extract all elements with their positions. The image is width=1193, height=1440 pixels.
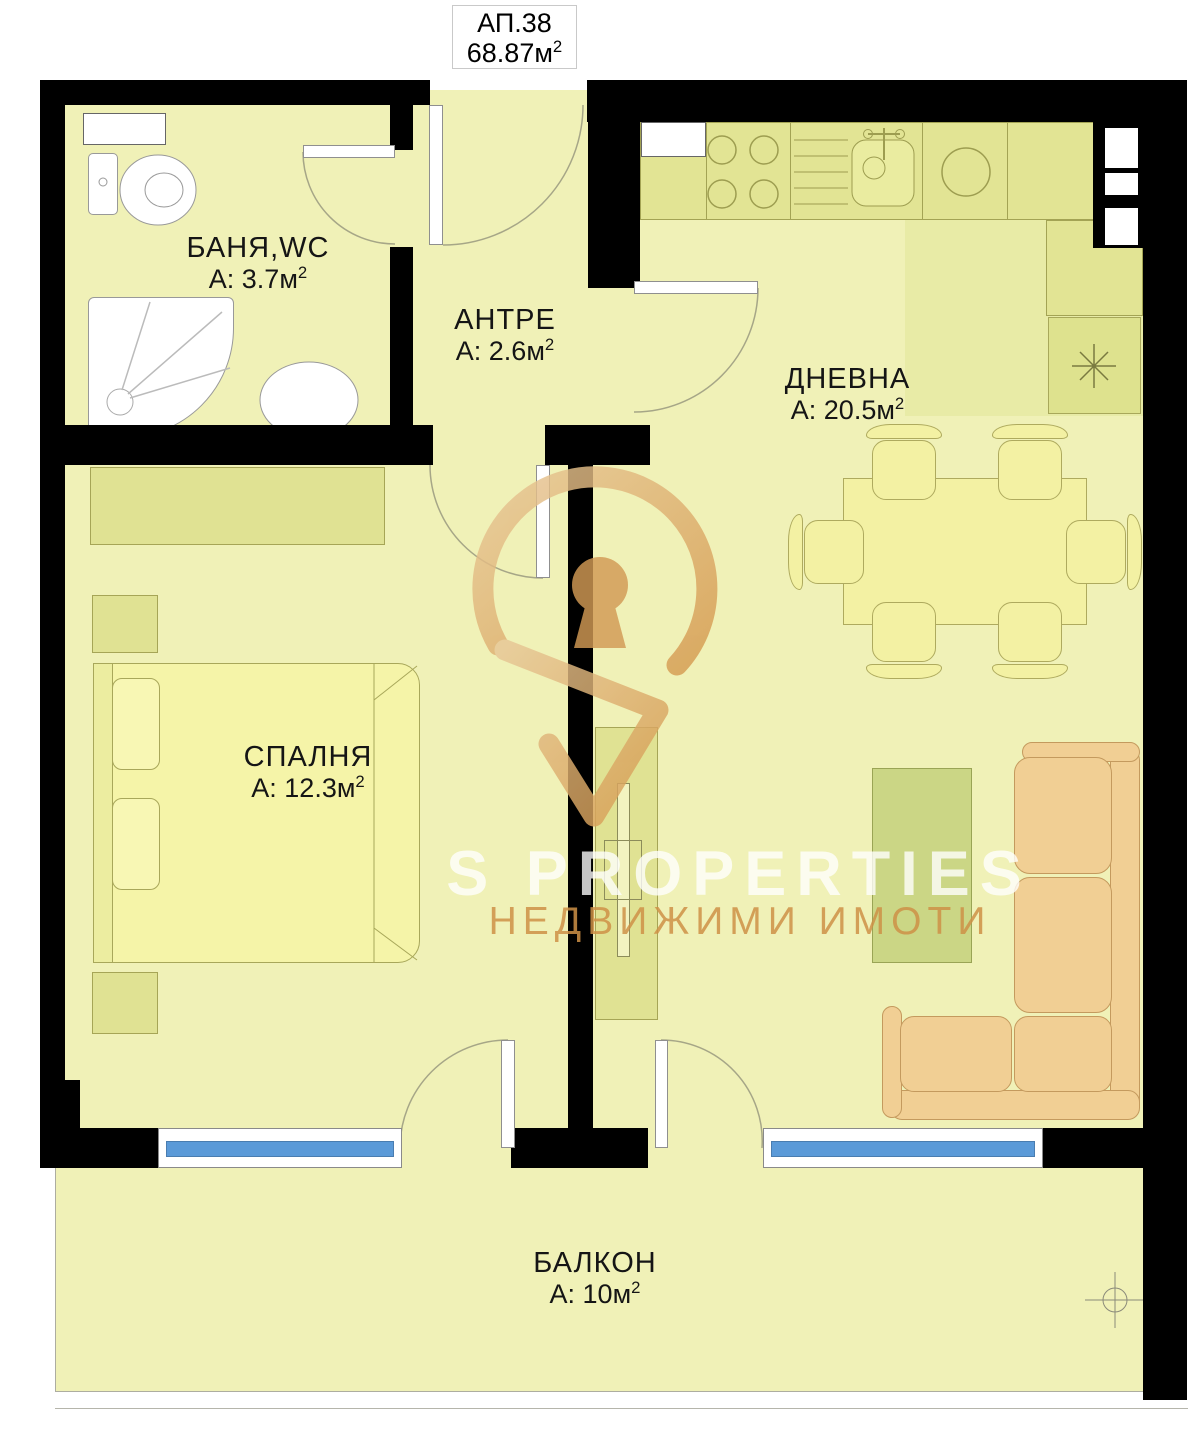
wall	[1143, 80, 1187, 1400]
wall	[40, 1128, 160, 1168]
sofa-backrest	[890, 1090, 1140, 1120]
sofa-cushion	[1014, 1016, 1112, 1092]
shaft-opening	[1105, 208, 1138, 245]
wall	[40, 80, 65, 1130]
total-area: 68.87м2	[453, 39, 576, 68]
room-label-bedroom: СПАЛНЯ А: 12.3м2	[208, 742, 408, 804]
chair	[872, 440, 936, 500]
sofa-armrest	[882, 1006, 902, 1118]
room-label-hallway: АНТРЕ А: 2.6м2	[405, 305, 605, 367]
counter-divider	[1007, 122, 1008, 220]
watermark-tagline: НЕДВИЖИМИ ИМОТИ	[400, 900, 1080, 944]
room-label-living: ДНЕВНА А: 20.5м2	[745, 364, 950, 426]
window-glass	[771, 1141, 1035, 1157]
chair	[998, 602, 1062, 662]
title-box: АП.38 68.87м2	[452, 5, 577, 69]
chair-back	[788, 514, 803, 590]
pillow	[112, 798, 160, 890]
wall	[390, 100, 413, 150]
wall	[588, 80, 640, 288]
kitchen-counter	[640, 122, 1100, 220]
room-label-bathroom: БАНЯ,WC А: 3.7м2	[158, 233, 358, 295]
chair-back	[992, 424, 1068, 439]
room-name: БАЛКОН	[495, 1248, 695, 1279]
room-area: А: 20.5м2	[745, 395, 950, 426]
door-leaf	[303, 145, 395, 158]
room-name: АНТРЕ	[405, 305, 605, 336]
door-leaf	[634, 281, 758, 294]
floor-plan: БАНЯ,WC А: 3.7м2 АНТРЕ А: 2.6м2 ДНЕВНА А…	[0, 0, 1193, 1440]
wall	[40, 425, 433, 465]
chair-back	[866, 424, 942, 439]
chair	[804, 520, 864, 584]
door-leaf	[501, 1040, 515, 1148]
room-name: БАНЯ,WC	[158, 233, 358, 264]
nightstand	[92, 972, 158, 1034]
chair-back	[992, 664, 1068, 679]
room-name: ДНЕВНА	[745, 364, 950, 395]
chair	[998, 440, 1062, 500]
washing-machine-icon	[641, 122, 706, 157]
wall	[511, 1128, 648, 1168]
bed-headboard	[93, 663, 113, 963]
door-leaf	[536, 465, 550, 578]
apartment-number: АП.38	[453, 8, 576, 39]
toilet-cistern-icon	[88, 153, 118, 215]
wall	[568, 465, 593, 1128]
window-glass	[166, 1141, 394, 1157]
wall	[1043, 1128, 1143, 1168]
counter-divider	[790, 122, 791, 220]
chair	[1066, 520, 1126, 584]
fridge-icon	[1048, 317, 1141, 414]
washing-machine-icon	[83, 113, 166, 145]
room-name: СПАЛНЯ	[208, 742, 408, 773]
room-area: А: 3.7м2	[158, 264, 358, 295]
wardrobe	[90, 467, 385, 545]
chair-back	[1127, 514, 1142, 590]
room-area: А: 12.3м2	[208, 773, 408, 804]
chair-back	[866, 664, 942, 679]
counter-divider	[922, 122, 923, 220]
nightstand	[92, 595, 158, 653]
pillow	[112, 678, 160, 770]
counter-divider	[706, 122, 707, 220]
shaft-opening	[1105, 173, 1138, 195]
room-label-balcony: БАЛКОН А: 10м2	[495, 1248, 695, 1310]
wall	[545, 425, 650, 465]
door-leaf	[429, 105, 443, 245]
room-area: А: 2.6м2	[405, 336, 605, 367]
room-area: А: 10м2	[495, 1279, 695, 1310]
shaft-opening	[1105, 128, 1138, 168]
balcony-outer-line	[55, 1408, 1188, 1409]
chair	[872, 602, 936, 662]
door-leaf	[655, 1040, 668, 1148]
sofa-cushion	[900, 1016, 1012, 1092]
wall	[40, 80, 430, 105]
sofa-backrest	[1110, 748, 1140, 1116]
